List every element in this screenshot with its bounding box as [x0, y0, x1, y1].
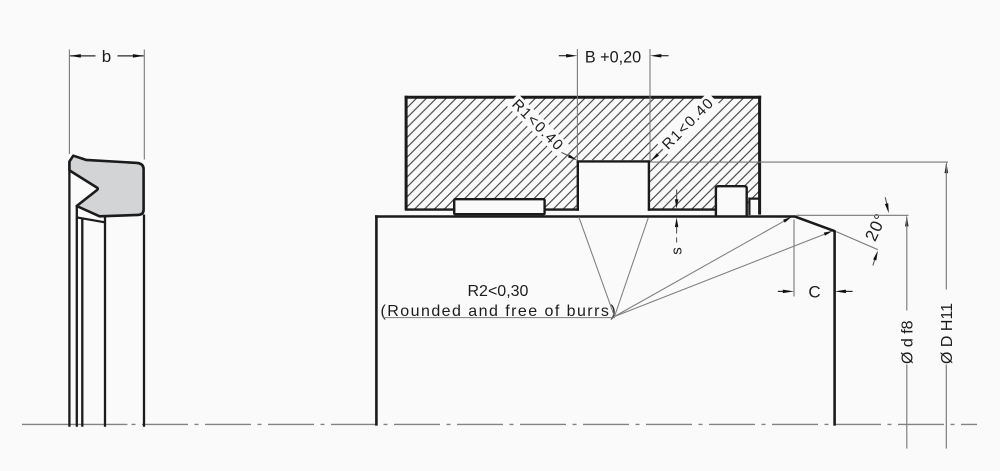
svg-text:s: s	[669, 247, 686, 255]
svg-text:C: C	[808, 283, 820, 302]
svg-text:Ø d f8: Ø d f8	[899, 320, 916, 364]
svg-text:Ø D H11: Ø D H11	[939, 303, 956, 364]
svg-text:R2<0,30: R2<0,30	[468, 283, 529, 300]
svg-text:B +0,20: B +0,20	[585, 48, 641, 66]
svg-text:b: b	[102, 47, 111, 66]
